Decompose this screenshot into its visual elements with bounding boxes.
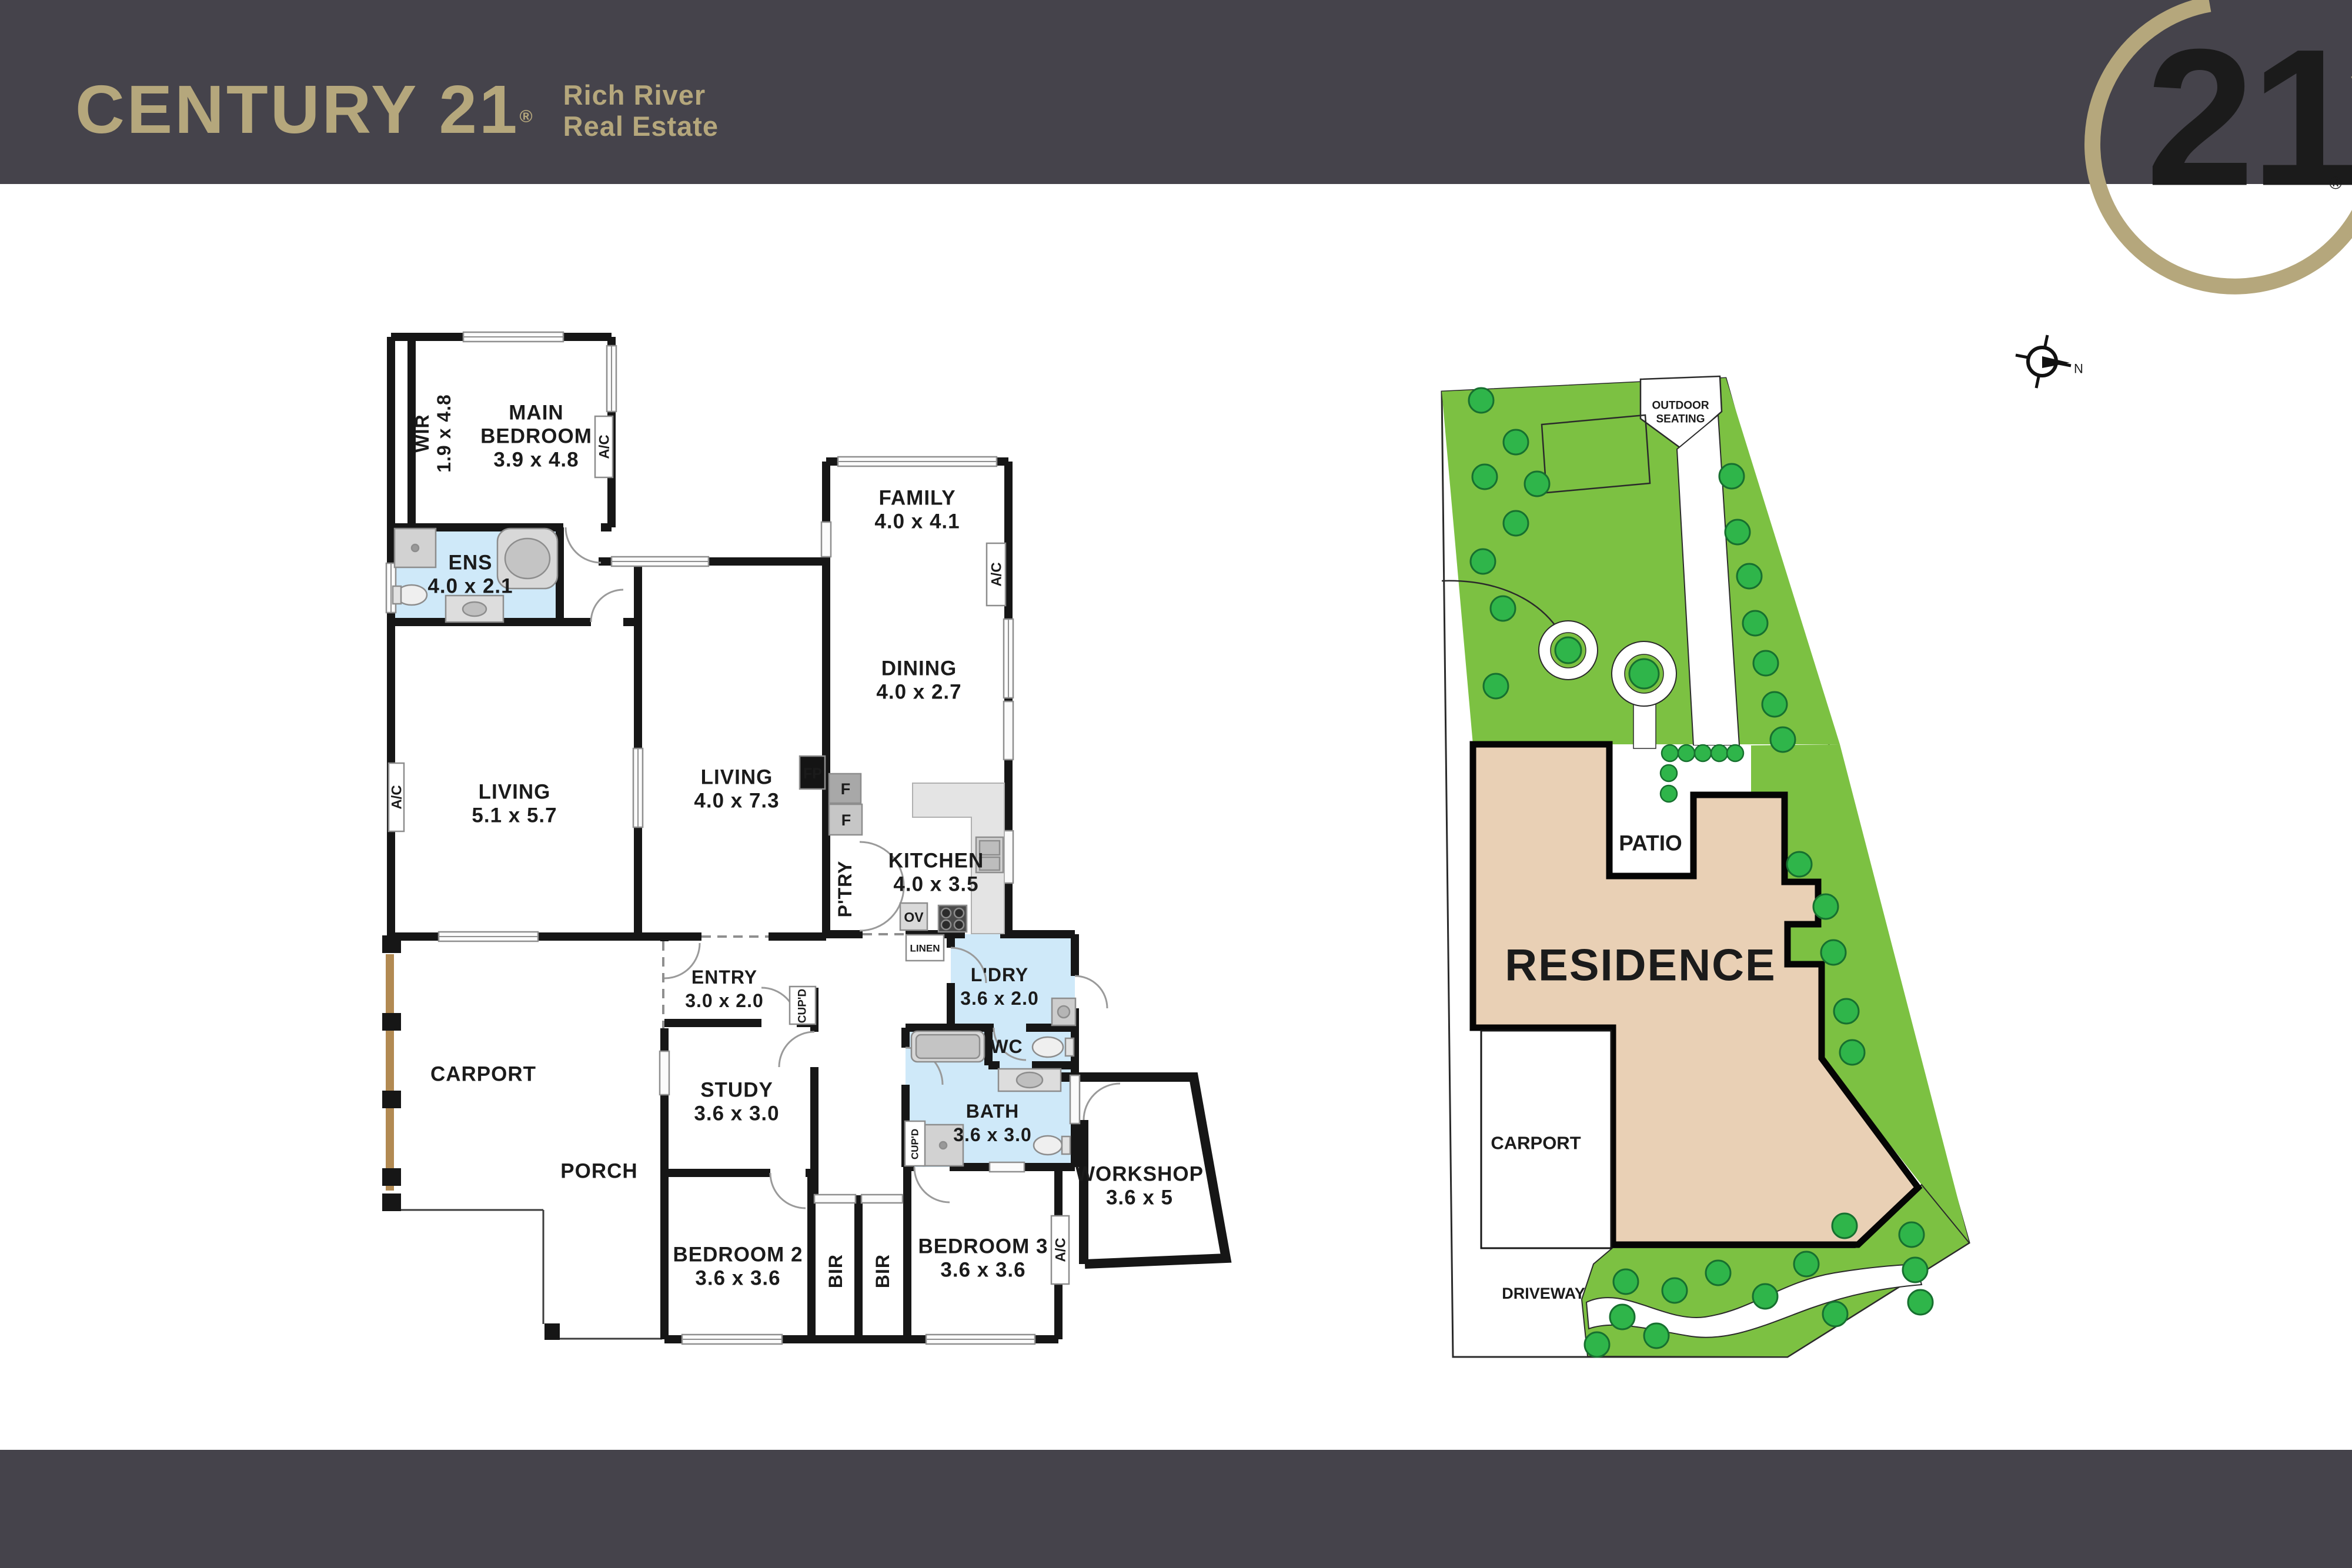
- site-label-outdoor1: OUTDOOR: [1652, 400, 1709, 412]
- tree-icon: [1629, 659, 1659, 688]
- porch-outline: [401, 1210, 662, 1339]
- tree-icon: [1753, 651, 1778, 676]
- room-label-main-bedroom-2: BEDROOM: [480, 425, 592, 448]
- room-label-main-bedroom-1: MAIN: [509, 402, 563, 424]
- site-label-outdoor2: SEATING: [1656, 413, 1705, 426]
- label-fridge2: F: [841, 811, 851, 829]
- room-label-bath: BATH: [966, 1101, 1020, 1122]
- room-label-porch: PORCH: [560, 1160, 637, 1183]
- tree-icon: [1903, 1258, 1927, 1282]
- footer-band: ECHUCA 36 Rutley Crescent Floor Area 219…: [0, 1450, 2352, 1568]
- room-label-study: STUDY: [700, 1079, 773, 1102]
- tree-icon: [1719, 464, 1744, 489]
- room-label-family: FAMILY: [878, 487, 955, 510]
- label-cupboard-entry: CUP'D: [797, 989, 809, 1023]
- bush-icon: [1727, 745, 1743, 761]
- tree-icon: [1644, 1323, 1669, 1348]
- bush-icon: [1661, 765, 1677, 781]
- room-dims-main-bedroom: 3.9 x 4.8: [493, 449, 579, 472]
- tree-icon: [1555, 637, 1581, 663]
- carport-structure: [382, 935, 401, 1211]
- bush-icon: [1678, 745, 1695, 761]
- tree-icon: [1832, 1213, 1857, 1238]
- site-label-patio: PATIO: [1619, 831, 1682, 855]
- bush-icon: [1711, 745, 1728, 761]
- room-dims-study: 3.6 x 3.0: [694, 1102, 779, 1125]
- tree-icon: [1491, 596, 1515, 621]
- room-dims-wir: 1.9 x 4.8: [433, 394, 455, 473]
- plans-canvas: 21 ® N: [0, 0, 2352, 1568]
- room-label-carport: CARPORT: [430, 1063, 536, 1086]
- seal-registered: ®: [2329, 174, 2342, 193]
- tree-icon: [1787, 852, 1812, 877]
- room-dims-workshop: 3.6 x 5: [1106, 1186, 1173, 1209]
- tree-icon: [1585, 1332, 1609, 1357]
- label-ac-bedroom: A/C: [597, 434, 613, 459]
- room-dims-laundry: 3.6 x 2.0: [960, 988, 1039, 1009]
- label-bir2: BIR: [872, 1254, 893, 1288]
- tree-icon: [1613, 1269, 1638, 1294]
- room-label-wc: WC: [990, 1036, 1023, 1057]
- century21-seal-logo: 21 ®: [2093, 4, 2352, 286]
- tree-icon: [1899, 1222, 1924, 1247]
- room-dims-living2: 4.0 x 7.3: [694, 790, 779, 813]
- room-label-laundry: L'DRY: [971, 964, 1029, 985]
- tree-icon: [1610, 1305, 1635, 1329]
- room-label-pantry: P'TRY: [834, 861, 856, 918]
- label-ac-living: A/C: [389, 785, 405, 809]
- compass-icon: N: [2016, 335, 2083, 388]
- room-dims-bedroom3: 3.6 x 3.6: [940, 1259, 1025, 1282]
- porch-post: [544, 1323, 560, 1340]
- label-ac-bedroom3: A/C: [1053, 1238, 1069, 1262]
- room-dims-bedroom2: 3.6 x 3.6: [695, 1267, 780, 1290]
- site-label-driveway: DRIVEWAY: [1502, 1285, 1585, 1302]
- site-label-carport: CARPORT: [1491, 1133, 1581, 1154]
- tree-icon: [1504, 430, 1528, 454]
- tree-icon: [1821, 940, 1846, 965]
- path-stem: [1633, 703, 1656, 748]
- tree-icon: [1743, 611, 1768, 636]
- tree-icon: [1525, 472, 1549, 496]
- room-label-workshop: WORKSHOP: [1075, 1163, 1204, 1186]
- label-bir1: BIR: [825, 1254, 846, 1288]
- tree-icon: [1762, 692, 1787, 717]
- tree-icon: [1725, 520, 1750, 544]
- room-label-ens: ENS: [449, 551, 493, 574]
- bath-toilet: [1034, 1136, 1062, 1155]
- tree-icon: [1794, 1252, 1819, 1276]
- bush-icon: [1662, 745, 1678, 761]
- compass-north-label: N: [2074, 362, 2083, 376]
- tree-icon: [1823, 1302, 1847, 1326]
- page: CENTURY 21® Rich River Real Estate 21 ® …: [0, 0, 2352, 1568]
- room-dims-living1: 5.1 x 5.7: [472, 804, 557, 827]
- tree-icon: [1469, 388, 1494, 413]
- tree-icon: [1472, 464, 1497, 489]
- tree-icon: [1908, 1290, 1933, 1315]
- label-ac-family: A/C: [989, 562, 1005, 586]
- tree-icon: [1834, 999, 1859, 1024]
- tree-icon: [1471, 549, 1495, 574]
- room-dims-family: 4.0 x 4.1: [874, 510, 960, 533]
- label-cupboard-bath: CUP'D: [910, 1129, 921, 1159]
- floor-plan: WIR 1.9 x 4.8 MAIN BEDROOM 3.9 x 4.8 ENS…: [382, 332, 1226, 1344]
- tree-icon: [1840, 1040, 1865, 1065]
- tree-icon: [1662, 1278, 1687, 1303]
- room-dims-ens: 4.0 x 2.1: [427, 575, 513, 598]
- room-label-entry: ENTRY: [691, 967, 757, 988]
- seal-number: 21: [2146, 9, 2352, 227]
- room-label-bedroom3: BEDROOM 3: [918, 1235, 1048, 1258]
- room-dims-bath: 3.6 x 3.0: [953, 1124, 1032, 1145]
- tree-icon: [1813, 894, 1838, 919]
- tree-icon: [1706, 1261, 1730, 1285]
- site-label-residence: RESIDENCE: [1505, 941, 1776, 991]
- label-fridge1: F: [841, 780, 851, 798]
- room-dims-kitchen: 4.0 x 3.5: [893, 873, 978, 896]
- room-label-living1: LIVING: [479, 781, 551, 804]
- room-label-bedroom2: BEDROOM 2: [673, 1243, 803, 1266]
- room-dims-entry: 3.0 x 2.0: [685, 990, 764, 1011]
- tree-icon: [1770, 727, 1795, 752]
- room-label-living2: LIVING: [701, 766, 773, 789]
- room-label-dining: DINING: [881, 657, 957, 680]
- tree-icon: [1753, 1284, 1778, 1309]
- room-label-kitchen: KITCHEN: [888, 850, 984, 872]
- label-fireplace: FP: [803, 765, 822, 782]
- label-linen: LINEN: [910, 943, 940, 954]
- bush-icon: [1661, 785, 1677, 802]
- label-oven: OV: [904, 910, 924, 925]
- site-plan: OUTDOOR SEATING PATIO RESIDENCE CARPORT …: [1442, 376, 1969, 1357]
- room-label-wir: WIR: [412, 414, 433, 452]
- tree-icon: [1737, 564, 1762, 589]
- wc-toilet: [1033, 1037, 1063, 1057]
- room-dims-dining: 4.0 x 2.7: [876, 681, 961, 704]
- tree-icon: [1504, 511, 1528, 536]
- tree-icon: [1484, 674, 1508, 698]
- bush-icon: [1695, 745, 1711, 761]
